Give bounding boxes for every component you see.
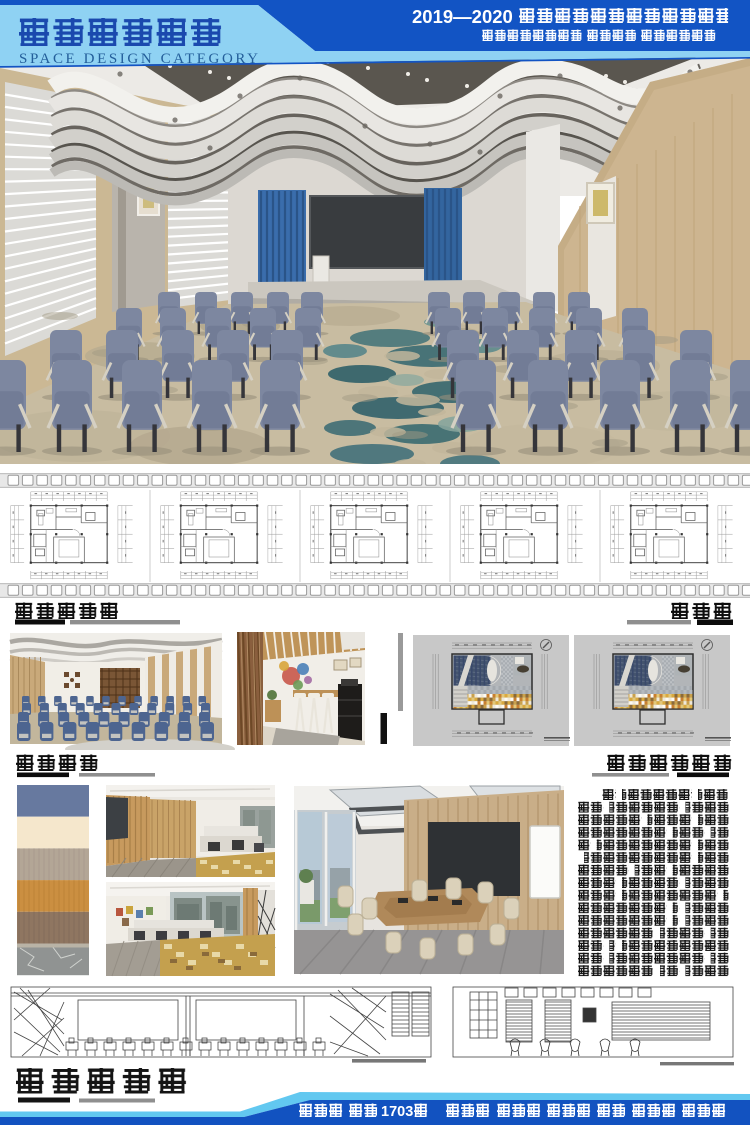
svg-text:1703: 1703 (381, 1104, 413, 1120)
svg-text:2019—2020: 2019—2020 (412, 6, 513, 27)
svg-text:SPACE DESIGN CATEGORY: SPACE DESIGN CATEGORY (19, 51, 261, 67)
